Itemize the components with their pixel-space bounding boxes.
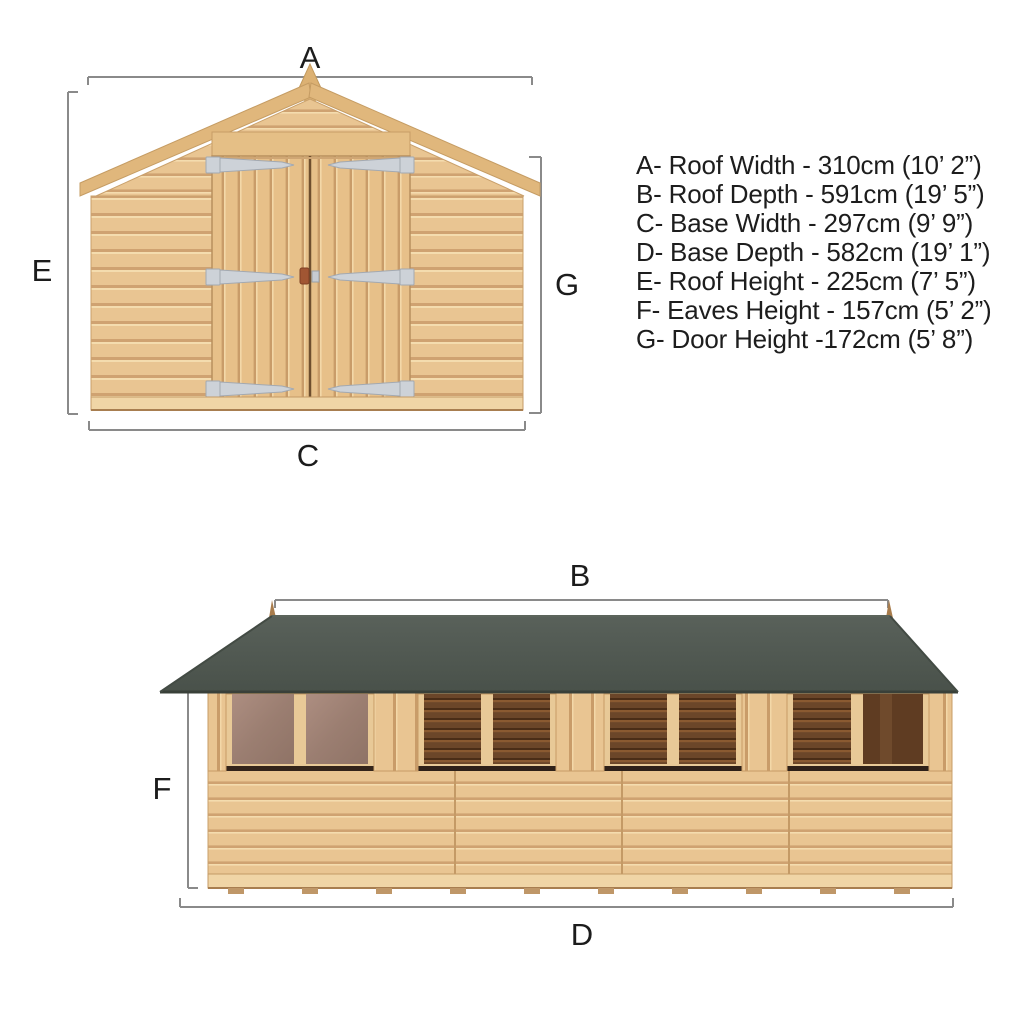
front-wall-left xyxy=(91,196,212,410)
dimension-line-e xyxy=(68,92,78,414)
front-wall-right xyxy=(410,196,523,410)
door-lintel xyxy=(212,132,410,156)
spec-item-b: B- Roof Depth - 591cm (19’ 5”) xyxy=(636,180,1006,209)
dimension-f: F xyxy=(153,690,198,888)
dimension-c: C xyxy=(89,421,525,473)
side-base-board xyxy=(208,874,952,888)
dimension-label-g: G xyxy=(555,267,579,302)
window-sill xyxy=(602,766,744,771)
door-handle xyxy=(300,268,309,284)
spec-item-g: G- Door Height -172cm (5’ 8”) xyxy=(636,325,1006,354)
felt-roof xyxy=(160,616,958,692)
window-1 xyxy=(224,694,376,771)
front-shed-illustration xyxy=(80,64,540,410)
spec-item-d: D- Base Depth - 582cm (19’ 1”) xyxy=(636,238,1006,267)
dimension-label-e: E xyxy=(32,253,53,288)
spec-item-c: C- Base Width - 297cm (9’ 9”) xyxy=(636,209,1006,238)
window-3 xyxy=(602,694,744,771)
window-sill xyxy=(416,766,558,771)
front-elevation: A E G C xyxy=(32,40,579,473)
spec-item-e: E- Roof Height - 225cm (7’ 5”) xyxy=(636,267,1006,296)
dimension-b: B xyxy=(275,558,888,608)
dimension-label-f: F xyxy=(153,771,172,806)
dimension-d: D xyxy=(180,898,953,952)
window-sill xyxy=(785,766,931,771)
side-elevation: B F D xyxy=(153,558,958,952)
dimension-line-d xyxy=(180,898,953,907)
spec-item-a: A- Roof Width - 310cm (10’ 2”) xyxy=(636,151,1006,180)
dimension-line-f xyxy=(188,690,198,888)
dimension-g: G xyxy=(529,157,579,413)
dimension-label-b: B xyxy=(570,558,591,593)
dimension-spec-list: A- Roof Width - 310cm (10’ 2”) B- Roof D… xyxy=(636,151,1006,354)
dimension-label-c: C xyxy=(297,438,319,473)
door-latch xyxy=(312,271,319,282)
dimension-label-d: D xyxy=(571,917,593,952)
front-base-board xyxy=(91,397,523,410)
window-sill xyxy=(224,766,376,771)
window-4 xyxy=(785,694,931,771)
dimension-e: E xyxy=(32,92,78,414)
shed-dimensions-diagram: A E G C xyxy=(0,0,1024,1024)
window-2 xyxy=(416,694,558,771)
dimension-line-b xyxy=(275,600,888,608)
side-shed-illustration xyxy=(160,600,958,894)
dimension-line-c xyxy=(89,421,525,430)
spec-item-f: F- Eaves Height - 157cm (5’ 2”) xyxy=(636,296,1006,325)
